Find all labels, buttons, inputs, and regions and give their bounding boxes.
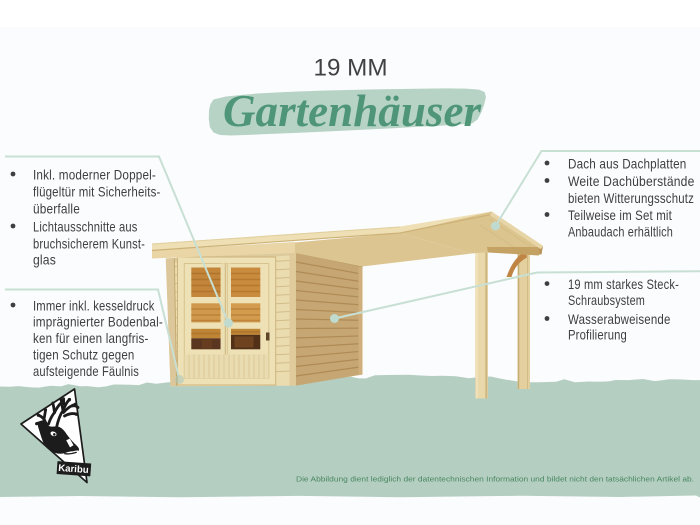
svg-text:tigen Schutz gegen: tigen Schutz gegen <box>33 346 135 362</box>
svg-text:flügeltür mit Sicherheits-: flügeltür mit Sicherheits- <box>33 184 161 200</box>
svg-text:Teilweise im Set mit: Teilweise im Set mit <box>568 207 672 223</box>
svg-text:Dach aus Dachplatten: Dach aus Dachplatten <box>568 155 687 171</box>
svg-text:19 MM: 19 MM <box>314 55 388 82</box>
svg-text:bruchsicherem Kunst-: bruchsicherem Kunst- <box>33 235 145 251</box>
svg-text:Weite Dachüberstände: Weite Dachüberstände <box>568 173 695 189</box>
svg-text:19 mm starkes Steck-: 19 mm starkes Steck- <box>568 276 679 292</box>
svg-text:Lichtausschnitte aus: Lichtausschnitte aus <box>33 219 138 235</box>
svg-text:glas: glas <box>33 251 56 267</box>
svg-text:überfalle: überfalle <box>33 201 80 217</box>
svg-text:Schraubsystem: Schraubsystem <box>568 292 645 308</box>
svg-text:Die Abbildung dient lediglich: Die Abbildung dient lediglich der datent… <box>296 475 694 484</box>
svg-text:aufsteigende Fäulnis: aufsteigende Fäulnis <box>33 363 139 379</box>
svg-text:imprägnierter Bodenbal-: imprägnierter Bodenbal- <box>33 313 163 329</box>
svg-text:Anbaudach erhältlich: Anbaudach erhältlich <box>568 224 673 240</box>
svg-text:Immer inkl. kesseldruck: Immer inkl. kesseldruck <box>33 297 155 313</box>
svg-text:Wasserabweisende: Wasserabweisende <box>568 311 671 327</box>
svg-text:Profilierung: Profilierung <box>568 327 627 343</box>
svg-text:ken für einen langfris-: ken für einen langfris- <box>33 330 149 346</box>
svg-text:bieten Witterungsschutz: bieten Witterungsschutz <box>568 190 694 206</box>
svg-text:Gartenhäuser: Gartenhäuser <box>223 85 482 136</box>
svg-text:Inkl. moderner Doppel-: Inkl. moderner Doppel- <box>33 167 156 183</box>
svg-text:Karibu: Karibu <box>58 463 89 476</box>
